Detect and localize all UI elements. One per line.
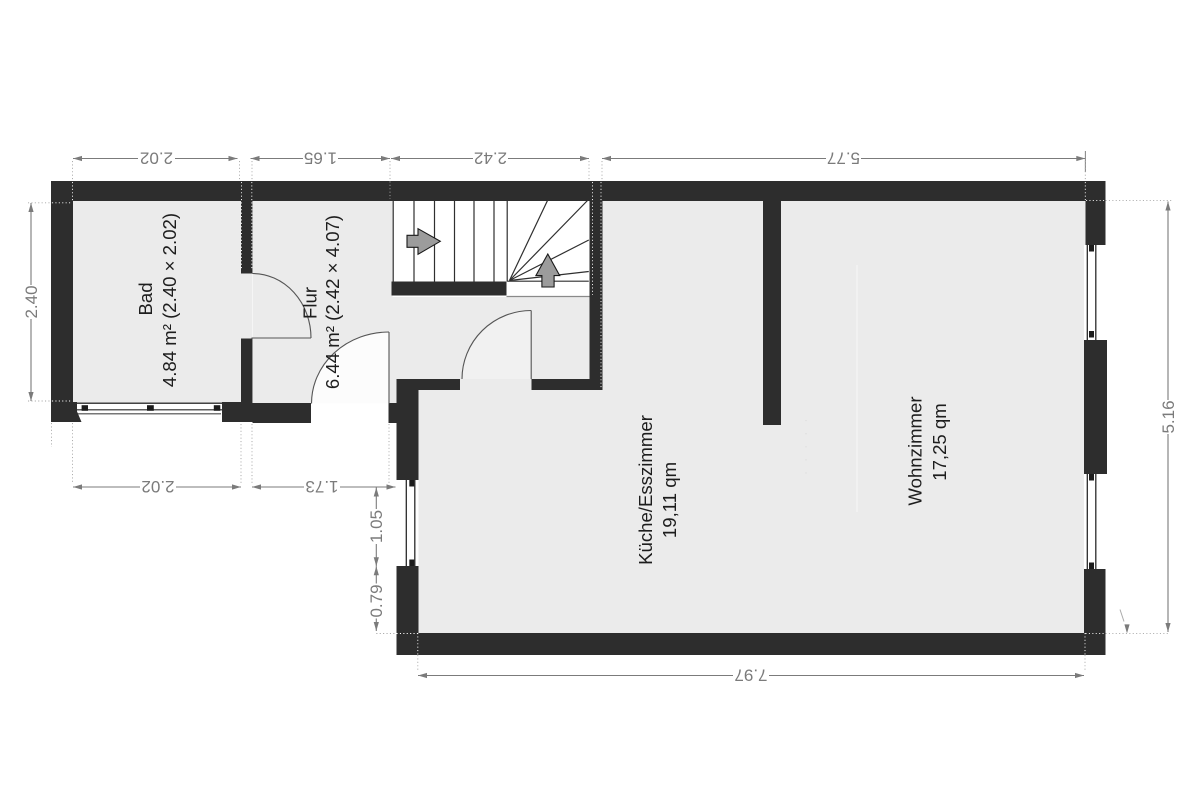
svg-text:17,25 qm: 17,25 qm — [929, 403, 950, 481]
svg-text:1.65: 1.65 — [304, 149, 337, 168]
svg-text:2.40: 2.40 — [22, 285, 41, 318]
svg-text:2.02: 2.02 — [140, 149, 173, 168]
svg-text:19,11 qm: 19,11 qm — [659, 462, 680, 538]
svg-text:Bad: Bad — [135, 282, 156, 315]
svg-text:Küche/Esszimmer: Küche/Esszimmer — [635, 415, 656, 565]
svg-text:Flur: Flur — [300, 287, 321, 319]
svg-text:7.97: 7.97 — [734, 666, 767, 685]
svg-text:4.84 m² (2.40 × 2.02): 4.84 m² (2.40 × 2.02) — [159, 213, 180, 387]
svg-text:Wohnzimmer: Wohnzimmer — [905, 396, 926, 505]
svg-text:5.77: 5.77 — [827, 149, 860, 168]
svg-text:2.42: 2.42 — [474, 149, 507, 168]
svg-text:6.44 m² (2.42 × 4.07): 6.44 m² (2.42 × 4.07) — [322, 215, 343, 389]
svg-text:0.79: 0.79 — [367, 584, 386, 617]
svg-text:1.05: 1.05 — [367, 510, 386, 543]
svg-text:1.73: 1.73 — [305, 477, 338, 496]
svg-text:5.16: 5.16 — [1159, 400, 1178, 433]
svg-text:2.02: 2.02 — [141, 477, 174, 496]
